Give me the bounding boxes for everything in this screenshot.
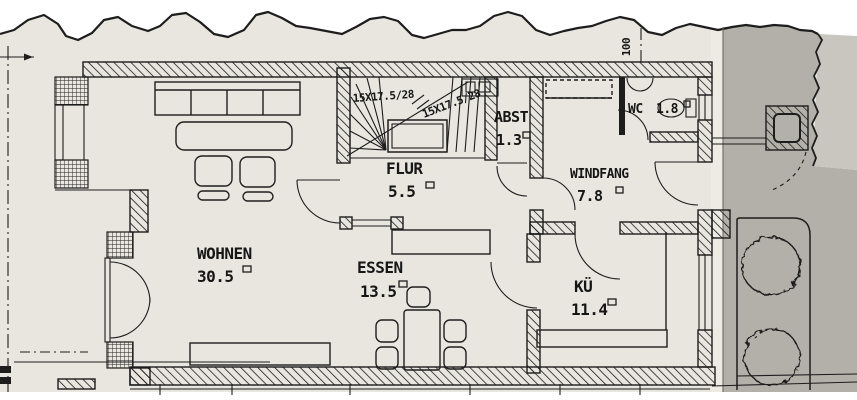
room-label-essen: ESSEN <box>357 258 403 277</box>
scanned-floor-plan-document: 100 <box>0 0 857 400</box>
room-label-windfang: WINDFANG <box>570 167 629 182</box>
room-label-wohnen: WOHNEN <box>197 244 252 263</box>
paper-underlay-sheet <box>813 34 857 170</box>
room-area-essen: 13.5 <box>360 282 397 301</box>
room-area-kueche: 11.4 <box>571 300 608 319</box>
entry-step <box>712 210 730 238</box>
room-label-flur: FLUR <box>386 159 423 178</box>
room-area-wohnen: 30.5 <box>197 267 234 286</box>
room-area-flur: 5.5 <box>388 182 415 201</box>
room-area-windfang: 7.8 <box>577 187 603 205</box>
room-area-abst: 1.3 <box>496 131 522 149</box>
room-area-wc: 1.8 <box>656 102 679 117</box>
room-label-kueche: KÜ <box>574 277 592 296</box>
room-label-wc: WC <box>628 102 643 117</box>
room-label-abst: ABST <box>494 108 529 126</box>
planter-pillar <box>766 106 808 150</box>
boundary-dimension-label: 100 <box>620 38 633 56</box>
